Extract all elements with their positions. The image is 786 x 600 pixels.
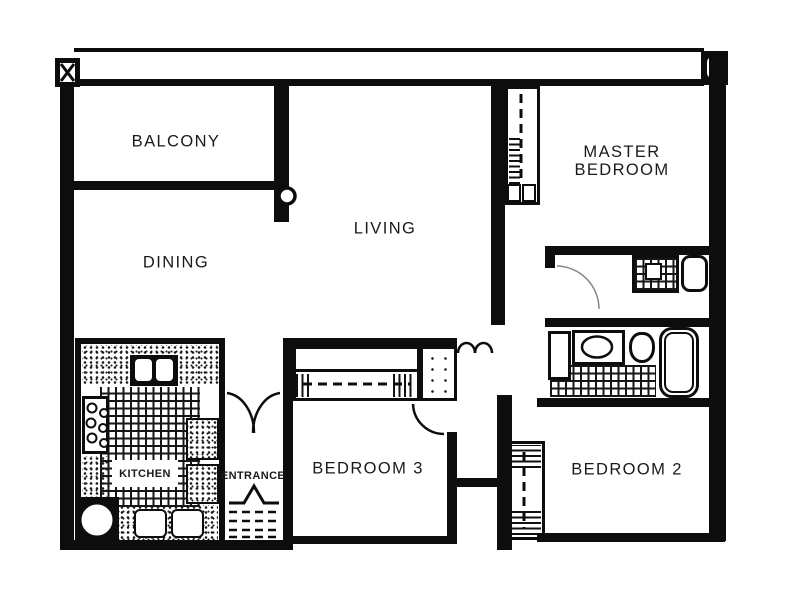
rail-cap-dot: [712, 64, 717, 71]
entry-threshold-mark: [229, 486, 279, 503]
door-arc-master-bath: [557, 266, 599, 309]
floor-plan: KITCHEN BALCONY DINING LIVING MASTER BED…: [0, 0, 786, 600]
plan-symbol-overlay: [0, 0, 786, 600]
closet-rod-lines: [303, 94, 524, 528]
entry-double-door-arc: [227, 393, 280, 433]
entry-door-mat: [229, 512, 281, 537]
door-arc-bedroom3: [413, 404, 444, 434]
kitchen-round-basin: [81, 504, 114, 537]
x-marker-icon: [61, 64, 74, 81]
column-marker-circle: [279, 188, 295, 204]
hall-swing-door-arcs: [458, 343, 492, 353]
vanity-bath2-sink: [582, 337, 612, 358]
stove-burners: [87, 404, 109, 448]
